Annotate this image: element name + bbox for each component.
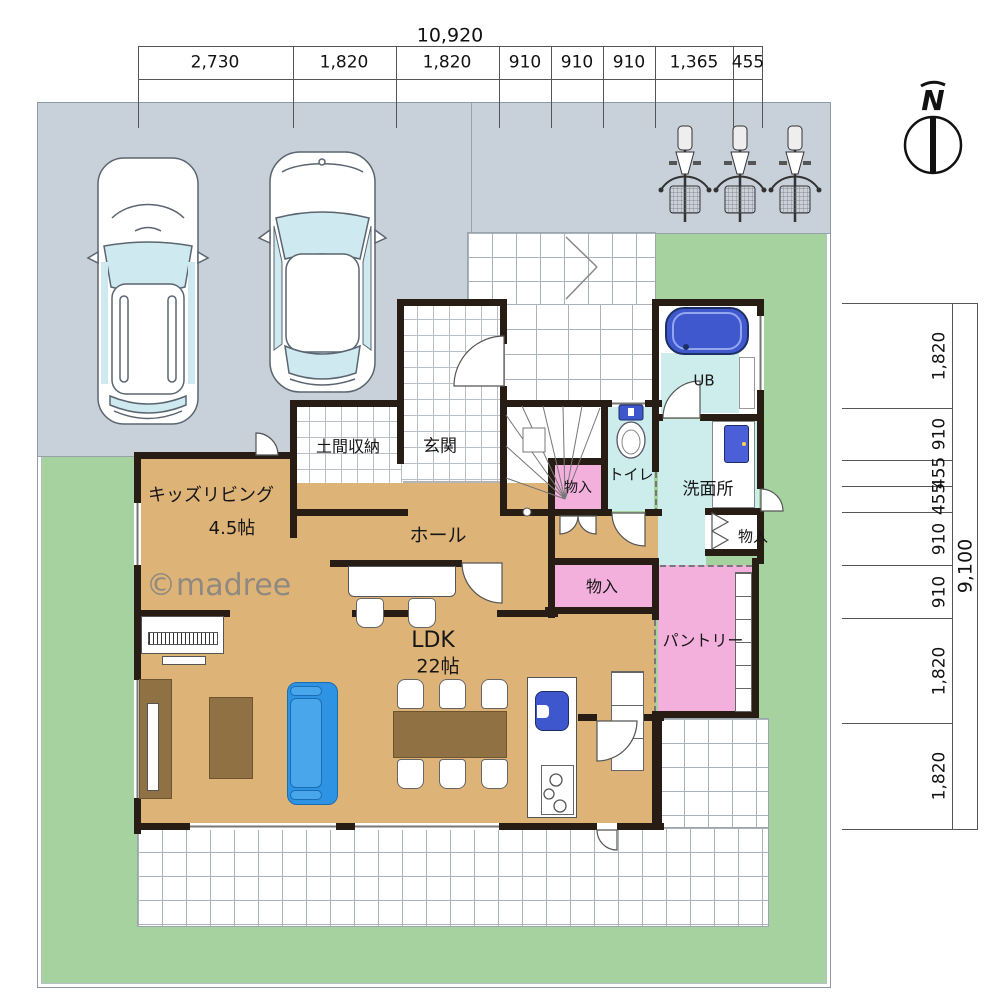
room-label-genkan: 玄関 [423,439,457,456]
dim-tick [293,46,294,128]
toilet-door-arc [612,513,645,546]
dim-tick [655,46,656,128]
dim-seg: 910 [932,523,949,555]
washroom-exterior-door [761,489,783,511]
stove-burners [544,774,566,812]
dim-tick [396,46,397,128]
dim-seg: 1,365 [670,55,719,72]
dim-seg: 910 [932,418,949,450]
dim-total-top: 10,920 [417,27,483,46]
floor-plan: N 10,920 2,730 1,820 1,820 910 910 910 1… [0,0,1000,1000]
room-label-kids-living: キッズリビング [148,487,274,505]
stairs [506,406,600,516]
dim-line [138,79,762,80]
closet-bifold-doors [712,513,728,549]
room-label-ldk-size: 22帖 [416,658,459,677]
dim-seg: 910 [561,55,593,72]
dim-seg: 1,820 [932,332,949,381]
dim-tick [551,46,552,128]
door-arcs [256,336,783,850]
bicycle [769,126,822,222]
dim-tick [842,565,952,566]
front-door-arc [454,336,504,386]
dim-seg: 910 [613,55,645,72]
dim-seg: 455 [732,55,764,72]
toilet-fixture [617,405,645,458]
dim-seg: 2,730 [191,55,240,72]
approach-slope-marks [566,237,597,299]
bicycle [659,126,712,222]
room-label-ldk: LDK [411,630,455,652]
dim-seg: 1,820 [932,752,949,801]
room-label-toilet: トイレ [608,468,653,483]
dim-tick [842,408,952,409]
storage1-door-right [578,516,596,534]
room-label-hall: ホール [409,527,466,546]
dim-tick [842,303,978,304]
room-label-storage-3: 物入 [738,530,768,545]
car-sedan [259,152,386,392]
kids-living-exterior-door [256,433,278,455]
room-label-kids-living-size: 4.5帖 [209,520,256,538]
dim-tick [499,46,500,128]
terrace-door-arc [597,830,617,850]
dim-seg: 1,820 [320,55,369,72]
bicycle [714,126,767,222]
car-minivan [88,158,208,424]
watermark: ©madree [146,568,291,603]
bicycles [659,126,822,222]
dim-line [952,303,953,829]
room-label-washroom: 洗面所 [683,482,734,499]
dim-seg: 910 [509,55,541,72]
room-label-storage-2: 物入 [586,579,618,595]
dim-tick [842,618,952,619]
dim-tick [138,46,139,128]
dim-tick [842,829,978,830]
room-label-doma: 土間収納 [316,439,380,455]
room-label-bath: UB [693,374,714,389]
dim-tick [842,723,952,724]
dim-seg: 455 [932,483,949,515]
storage1-door-left [560,516,578,534]
bathtub [666,308,748,354]
room-label-storage-1: 物入 [564,481,592,495]
kitchen-door-arc [597,721,637,761]
room-label-pantry: パントリー [663,633,744,649]
dim-line [977,303,978,829]
hall-ldk-door-arc [462,563,502,603]
dim-seg: 910 [932,576,949,608]
dim-tick [603,46,604,128]
dim-total-right: 9,100 [957,539,976,593]
compass-label: N [921,87,944,115]
dim-seg: 1,820 [932,647,949,696]
dim-seg: 1,820 [423,55,472,72]
